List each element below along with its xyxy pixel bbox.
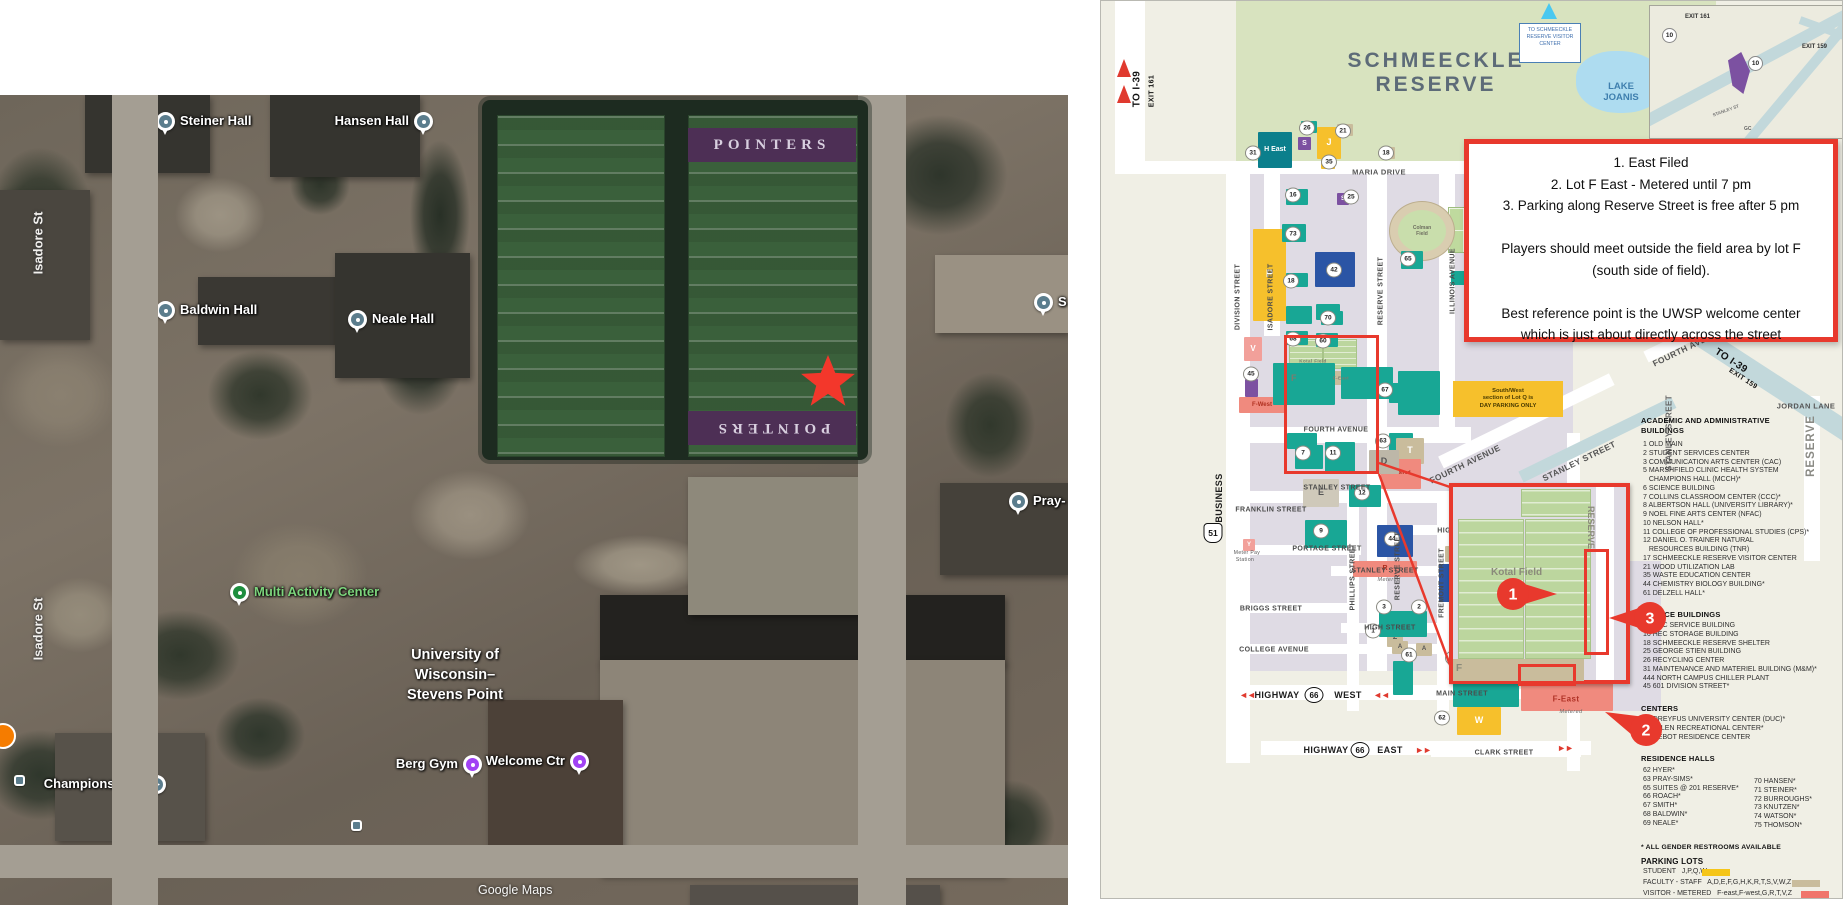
legend-item: CHAMPIONS HALL (MCCH)* (1643, 476, 1741, 485)
stanley-st-inset-label: STANLEY ST (1712, 103, 1740, 117)
legend-item: 3 COMMUNICATION ARTS CENTER (CAC) (1643, 459, 1781, 468)
street-label-division-street: DIVISION STREET (1235, 264, 1242, 330)
hall-pin-icon (159, 115, 172, 128)
building-badge-21: 21 (1335, 124, 1351, 139)
hall-pin-icon (1012, 495, 1025, 508)
route-66-shield: 66 (1305, 687, 1324, 703)
building-block (1245, 379, 1258, 397)
legend-item: 69 NEALE* (1643, 820, 1678, 829)
lot-f-inset-label: F (1456, 663, 1462, 674)
legend-item: 22 DEBOT RESIDENCE CENTER (1643, 734, 1750, 743)
hall-pin-icon (351, 313, 364, 326)
building-roof (488, 700, 623, 855)
hall-pin-icon (417, 115, 430, 128)
legend-item: 9 NOEL FINE ARTS CENTER (NFAC) (1643, 511, 1762, 520)
legend-item: 15 HEC SERVICE BUILDING (1643, 622, 1735, 631)
marker-label: Neale Hall (372, 311, 434, 326)
field-area-highlight-box (1284, 335, 1379, 474)
terrain-patch (160, 165, 280, 265)
annotation-line: 3. Parking along Reserve Street is free … (1503, 195, 1799, 217)
street-label-meter-pay: Meter Pay (1234, 550, 1260, 556)
parking-row: VISITOR - METERED F-east,F-west,G,R,T,V,… (1643, 890, 1792, 899)
marker-label: Pray- (1033, 493, 1066, 508)
building-roof (600, 660, 1005, 875)
legend-item: 70 HANSEN* (1754, 778, 1796, 787)
building-roof (270, 95, 420, 177)
map-marker-neale-hall[interactable]: Neale Hall (348, 310, 367, 329)
pin-dot-icon (356, 318, 360, 322)
kotal-field-inset-label: Kotal Field (1491, 567, 1542, 578)
all-gender-restrooms-note: * ALL GENDER RESTROOMS AVAILABLE (1641, 844, 1781, 851)
annotation-line: 2. Lot F East - Metered until 7 pm (1551, 174, 1751, 196)
street-label-isadore-st: Isadore St (31, 212, 46, 275)
marker-label: Multi Activity Center (254, 584, 379, 599)
map-date: 4-14-2019 (1794, 898, 1826, 899)
street-label-main-street: MAIN STREET (1436, 691, 1488, 698)
legend-item: 19 DREYFUS UNIVERSITY CENTER (DUC)* (1643, 716, 1785, 725)
colman-field: ColmanField (1398, 210, 1446, 252)
building-block (1393, 661, 1413, 695)
legend-item: 31 MAINTENANCE AND MATERIEL BUILDING (M&… (1643, 666, 1817, 675)
parking-color-swatch (1702, 869, 1730, 876)
practice-field-inset (1521, 489, 1591, 517)
legend-item: 16 HEC STORAGE BUILDING (1643, 631, 1739, 640)
street-label-stanley-street: STANLEY STREET (1303, 485, 1370, 492)
legend-item: 12 DANIEL O. TRAINER NATURAL (1643, 537, 1754, 546)
lot-q-note-line: section of Lot Q is (1483, 395, 1534, 403)
hall-pin-icon (159, 304, 172, 317)
terrain-patch (210, 505, 390, 645)
legend-item: 45 601 DIVISION STREET* (1643, 683, 1729, 692)
reserve-parking-highlight (1584, 549, 1609, 655)
pin-dot-icon (471, 763, 475, 767)
street-label-jordan-lane: JORDAN LANE (1777, 402, 1836, 411)
marker-label: S (1058, 294, 1067, 309)
legend-item: 25 GEORGE STIEN BUILDING (1643, 648, 1741, 657)
legend-header-residence-halls: RESIDENCE HALLS (1641, 754, 1715, 763)
street-label-business: BUSINESS (1214, 473, 1224, 522)
google-maps-watermark: Google Maps (478, 883, 552, 897)
building-badge-35: 35 (1321, 155, 1337, 170)
legend-item: 71 STEINER* (1754, 787, 1797, 796)
hall-pin-icon (1037, 296, 1050, 309)
purple-pin-icon (466, 758, 479, 771)
campus-inset-shape (1728, 52, 1750, 94)
to-i39-arrow-icon (1117, 85, 1131, 103)
street-label-highway: HIGHWAY (1255, 690, 1300, 700)
legend-header-service-buildings: SERVICE BUILDINGS (1641, 610, 1721, 619)
building-badge-9: 9 (1313, 524, 1329, 539)
legend-item: 65 SUITES @ 201 RESERVE* (1643, 785, 1739, 794)
legend-item: 6 SCIENCE BUILDING (1643, 485, 1715, 494)
building-badge-73: 73 (1285, 227, 1301, 242)
building-badge-16: 16 (1285, 188, 1301, 203)
street-label-reserve: RESERVE (1805, 415, 1817, 477)
street-label-: ◄◄ (1239, 690, 1255, 700)
street-label-college-avenue: COLLEGE AVENUE (1239, 647, 1309, 654)
bus-stop-icon[interactable] (351, 820, 362, 831)
building-badge-2: 2 (1411, 600, 1427, 615)
lot-f-east-highlight (1518, 664, 1576, 686)
building-badge-3: 3 (1376, 600, 1392, 615)
building-badge-25: 25 (1343, 190, 1359, 205)
map-marker-multi-activity-center[interactable]: Multi Activity Center (230, 583, 249, 602)
kotal-field-inset-right (1525, 519, 1591, 659)
pin-dot-icon (164, 309, 168, 313)
street-label-isadore-street: ISADORE STREET (1268, 263, 1275, 330)
campus-map[interactable]: ColmanFieldPQVF-WestH EastSJSTMeteredDEZ… (1100, 0, 1843, 899)
legend-item: 72 BURROUGHS* (1754, 796, 1812, 805)
pointers-endzone-text: POINTERS (714, 420, 831, 437)
exit-159-label: EXIT 159 (1802, 44, 1827, 50)
street-label-isadore-st: Isadore St (31, 598, 46, 661)
legend-item: 67 SMITH* (1643, 802, 1677, 811)
marker-label: Baldwin Hall (180, 302, 257, 317)
street-label-highway: HIGHWAY (1304, 745, 1349, 755)
pin-dot-icon (1017, 500, 1021, 504)
street-label-reserve-street: RESERVE STREET (1378, 257, 1385, 326)
route-66-shield: 66 (1351, 742, 1370, 758)
legend-item: 26 RECYCLING CENTER (1643, 657, 1724, 666)
street-label-exit-161: EXIT 161 (1149, 75, 1156, 107)
lot-q-note: South/Westsection of Lot Q isDAY PARKING… (1453, 381, 1563, 417)
legend-header-academic-and-administrative: ACADEMIC AND ADMINISTRATIVE (1641, 416, 1770, 425)
pin-dot-icon (1042, 301, 1046, 305)
visitor-center-arrow-icon (1541, 3, 1557, 19)
building-badge-62: 62 (1434, 711, 1450, 726)
legend-item: 10 NELSON HALL* (1643, 520, 1704, 529)
marker-label: Steiner Hall (180, 113, 252, 128)
street-label-maria-drive: MARIA DRIVE (1352, 168, 1406, 177)
legend-item: 75 THOMSON* (1754, 822, 1802, 831)
legend-item: 444 NORTH CAMPUS CHILLER PLANT (1643, 675, 1769, 684)
green-pin-icon (233, 586, 246, 599)
map-marker-steiner-hall[interactable]: Steiner Hall (156, 112, 175, 131)
building-badge-18: 18 (1378, 146, 1394, 161)
legend-item: 63 PRAY-SIMS* (1643, 776, 1693, 785)
legend-item: 20 ALLEN RECREATIONAL CENTER* (1643, 725, 1764, 734)
business-51-shield: 51 (1204, 523, 1223, 543)
parking-color-swatch (1792, 880, 1820, 887)
annotation-line: 1. East Filed (1613, 152, 1688, 174)
street-label-west: WEST (1334, 690, 1362, 700)
legend-item: 35 WASTE EDUCATION CENTER (1643, 572, 1751, 581)
building-block-s: S (1298, 137, 1311, 150)
building-badge-18: 18 (1283, 274, 1299, 289)
street-label-metered: Metered (1560, 709, 1583, 715)
street-label-: ◄◄ (1373, 690, 1389, 700)
lot-q-note-line: South/West (1492, 388, 1524, 396)
legend-item: 62 HYER* (1643, 767, 1675, 776)
endzone-north: POINTERS (688, 128, 856, 162)
legend-item: 5 MARSHFIELD CLINIC HEALTH SYSTEM (1643, 467, 1779, 476)
building-badge-26: 26 (1299, 121, 1315, 136)
schmeeckle-reserve-label: SCHMEECKLERESERVE (1331, 49, 1541, 97)
legend-item: 1 OLD MAIN (1643, 441, 1683, 450)
colman-field-label: Field (1416, 231, 1428, 237)
pin-dot-icon (238, 591, 242, 595)
building-badge-61: 61 (1401, 648, 1417, 663)
legend-item: 44 CHEMISTRY BIOLOGY BUILDING* (1643, 581, 1765, 590)
building-badge-45: 45 (1243, 367, 1259, 382)
map-marker-hansen-hall[interactable]: Hansen Hall (414, 112, 433, 131)
street-label-clark-street: CLARK STREET (1475, 750, 1534, 757)
map-marker-baldwin-hall[interactable]: Baldwin Hall (156, 301, 175, 320)
parking-row: FACULTY - STAFF A,D,E,F,G,H,K,R,T,S,V,W,… (1643, 879, 1791, 888)
route-10-badge: 10 (1662, 28, 1677, 43)
endzone-south: POINTERS (688, 411, 856, 445)
terrain-patch (190, 335, 330, 455)
map-marker-welcome-ctr[interactable]: Welcome Ctr (570, 752, 589, 771)
street-label-east: EAST (1377, 745, 1403, 755)
road-4th-ave (0, 845, 1068, 878)
street-label-high-street: HIGH STREET (1364, 625, 1415, 632)
building-block (1286, 306, 1312, 324)
legend-item: 2 STUDENT SERVICES CENTER (1643, 450, 1750, 459)
building-badge-67: 67 (1377, 383, 1393, 398)
street-label-phillips-street: PHILLIPS STREET (1350, 543, 1357, 610)
parking-row: STUDENT J,P,Q,W (1643, 868, 1707, 877)
marker-label: Berg Gym (396, 756, 458, 771)
legend-item: 61 DELZELL HALL* (1643, 590, 1705, 599)
legend-item: 8 ALBERTSON HALL (UNIVERSITY LIBRARY)* (1643, 502, 1793, 511)
kotal-field-inset-left (1458, 519, 1524, 659)
annotation-line: (south side of field). (1592, 260, 1710, 282)
street-label-reserve-street: RESERVE STREET (1395, 532, 1402, 601)
street-label-briggs-street: BRIGGS STREET (1240, 606, 1302, 613)
building-block-w: W (1457, 707, 1501, 735)
exit-161-label: EXIT 161 (1685, 14, 1710, 20)
parking-notes-annotation: 1. East Filed2. Lot F East - Metered unt… (1464, 139, 1838, 342)
building-badge-31: 31 (1245, 146, 1261, 161)
legend-header-parking-lots: PARKING LOTS (1641, 857, 1703, 866)
marker-label: Hansen Hall (335, 113, 409, 128)
building-block-h-east: H East (1258, 132, 1292, 168)
building-badge-70: 70 (1320, 311, 1336, 326)
gc-inset-label: GC (1744, 126, 1752, 132)
street-label-to-i-39: TO I-39 (1132, 71, 1143, 108)
terrain-patch (930, 355, 1050, 495)
legend-item: 21 WOOD UTILIZATION LAB (1643, 564, 1735, 573)
parking-color-swatch (1801, 891, 1829, 898)
street-label-stanley-street: STANLEY STREET (1351, 568, 1418, 575)
legend-item: 66 ROACH* (1643, 793, 1681, 802)
building-badge-42: 42 (1326, 263, 1342, 278)
road (1226, 163, 1250, 763)
annotation-line: Best reference point is the UWSP welcome… (1501, 303, 1800, 325)
marker-label: Welcome Ctr (486, 753, 565, 768)
map-marker-pray[interactable]: Pray- (1009, 492, 1028, 511)
legend-item: 18 SCHMEECKLE RESERVE SHELTER (1643, 640, 1770, 649)
pin-dot-icon (578, 760, 582, 764)
terrain-patch (200, 685, 320, 785)
map-marker-berg-gym[interactable]: Berg Gym (463, 755, 482, 774)
street-label-franklin-street: FRANKLIN STREET (1235, 507, 1306, 514)
annotation-line: Players should meet outside the field ar… (1501, 238, 1800, 260)
legend-item: 11 COLLEGE OF PROFESSIONAL STUDIES (CPS)… (1643, 529, 1809, 538)
annotation-line: which is just about directly across the … (1521, 324, 1781, 346)
legend-header-buildings: BUILDINGS (1641, 426, 1684, 435)
street-label-: ►► (1557, 743, 1573, 753)
reserve-street-inset-label: RESERVE (1586, 506, 1596, 549)
legend-item: RESOURCES BUILDING (TNR) (1643, 546, 1749, 555)
to-i39-arrow-icon (1117, 59, 1131, 77)
building-block-v: V (1244, 337, 1262, 361)
visitor-center-sign: TO SCHMEECKLERESERVE VISITORCENTER (1519, 23, 1581, 63)
map-marker-s[interactable]: S (1034, 293, 1053, 312)
legend-item: 7 COLLINS CLASSROOM CENTER (CCC)* (1643, 494, 1781, 503)
legend-item: 17 SCHMEECKLE RESERVE VISITOR CENTER (1643, 555, 1797, 564)
legend-item: 73 KNUTZEN* (1754, 804, 1800, 813)
loos-family-field-turf (497, 115, 665, 457)
street-label-station: Station (1236, 557, 1254, 563)
street-label-metered: Metered (1378, 577, 1401, 583)
street-label-illinois-avenue: ILLINOIS AVENUE (1450, 248, 1457, 314)
area-inset-map: 10 10 EXIT 161 EXIT 159 STANLEY ST GC (1649, 5, 1843, 139)
satellite-map[interactable]: Isadore StIsadore StReserve StReserve St… (0, 95, 1068, 905)
pin-dot-icon (164, 120, 168, 124)
building-block (1398, 371, 1440, 415)
building-block-a: A (1416, 643, 1432, 656)
legend-header-centers: CENTERS (1641, 704, 1678, 713)
legend-item: 74 WATSON* (1754, 813, 1796, 822)
building-badge-65: 65 (1400, 252, 1416, 267)
route-10-badge: 10 (1748, 56, 1763, 71)
pin-dot-icon (422, 120, 426, 124)
building-roof (688, 477, 860, 615)
legend-item: 68 BALDWIN* (1643, 811, 1687, 820)
street-label-f-east: F-East (1553, 695, 1580, 704)
terrain-patch (390, 455, 550, 575)
pointers-endzone-text: POINTERS (714, 137, 831, 154)
bus-stop-icon[interactable] (14, 775, 25, 786)
street-label-fremont-street: FREMONT STREET (1439, 548, 1446, 618)
building-block-e: E (1303, 479, 1339, 507)
road-isadore-st (112, 95, 158, 905)
uwsp-campus-label: University ofWisconsin–Stevens Point (380, 645, 530, 705)
transit-icon (0, 723, 16, 749)
screenshot-stage: Isadore StIsadore StReserve StReserve St… (0, 0, 1846, 909)
purple-pin-icon (573, 755, 586, 768)
street-label-: ►► (1415, 745, 1431, 755)
eddie-kotal-field-turf (688, 115, 858, 457)
lot-q-note-line: DAY PARKING ONLY (1480, 403, 1537, 411)
